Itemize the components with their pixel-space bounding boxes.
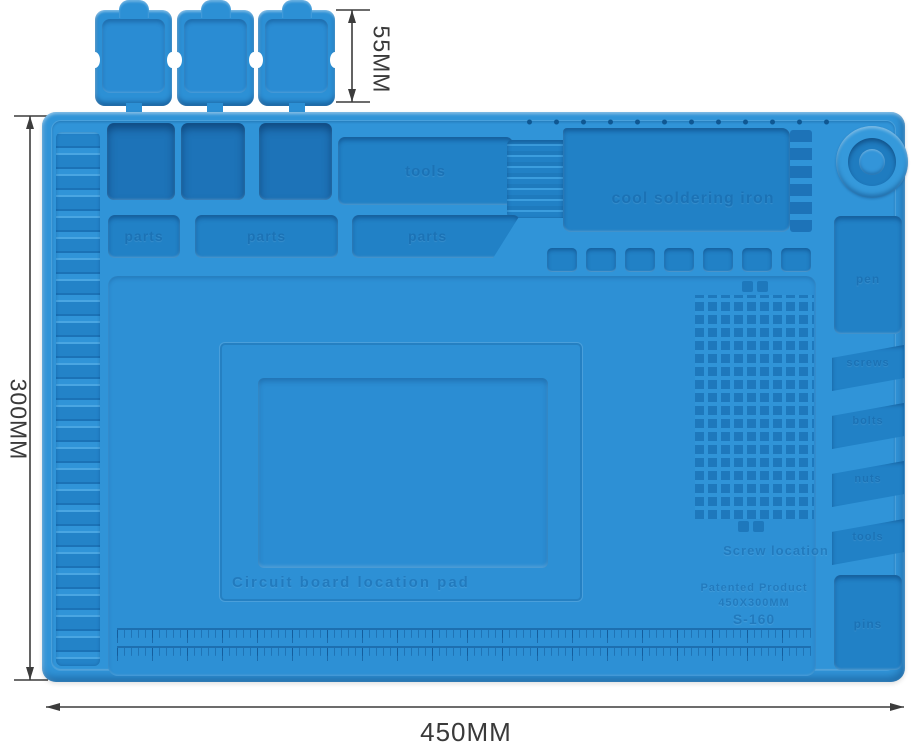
- parts-tray-3-label: parts: [352, 228, 503, 244]
- parts-tray-3: parts: [352, 215, 520, 258]
- pen-tray: pen: [834, 216, 902, 334]
- lid-notch: [253, 52, 263, 68]
- lid-compartment-2: [177, 10, 254, 106]
- tools-tray: tools: [338, 137, 513, 205]
- small-pocket: [781, 248, 811, 272]
- lid-compartment-1: [95, 10, 172, 106]
- right-bottom-tray: pins: [834, 575, 902, 670]
- model-number-label: S-160: [666, 611, 842, 627]
- iron-holder-center: [859, 149, 885, 175]
- circuit-board-pad-label: Circuit board location pad: [232, 574, 532, 591]
- lid-notch: [172, 52, 182, 68]
- patent-line-1: Patented Product: [666, 582, 842, 594]
- soldering-iron-tray-label: cool soldering iron: [603, 190, 783, 208]
- circuit-board-pad: [258, 378, 548, 568]
- product-photo-soldering-mat: 55MM 300MM 450MM tools cool solderin: [0, 0, 919, 752]
- patent-line-2: 450X300MM: [666, 597, 842, 609]
- soldering-iron-tray: cool soldering iron: [563, 128, 790, 232]
- lid-notch: [90, 52, 100, 68]
- small-pocket: [742, 248, 772, 272]
- screw-grid-cell: [753, 521, 764, 532]
- ribbed-ramp: [507, 140, 563, 218]
- square-notch-column: [790, 130, 812, 232]
- screw-grid-cell: [742, 281, 753, 292]
- lid-face: [102, 19, 165, 93]
- bottom-ruler-1: [117, 628, 811, 643]
- parts-tray-1: parts: [108, 215, 180, 258]
- screw-location-grid: [695, 295, 814, 519]
- small-pocket: [586, 248, 616, 272]
- lid-face: [184, 19, 247, 93]
- bit-holes-row: [512, 117, 838, 127]
- left-ridge-strip: [56, 132, 100, 666]
- pen-tray-label: pen: [834, 272, 902, 286]
- bottom-ruler-2: [117, 646, 811, 661]
- slant-tray-3-label: nuts: [832, 473, 904, 485]
- slant-tray-1-label: screws: [832, 357, 904, 369]
- parts-tray-2-label: parts: [195, 228, 338, 244]
- deep-square-compartment-2: [181, 123, 245, 200]
- slant-tray-4-label: tools: [832, 531, 904, 543]
- iron-holder-circle: [836, 126, 908, 198]
- silicone-mat: tools cool soldering iron parts parts pa…: [42, 112, 905, 682]
- small-pocket: [703, 248, 733, 272]
- small-pocket: [547, 248, 577, 272]
- iron-holder-groove: [848, 138, 896, 186]
- deep-square-compartment-1: [107, 123, 175, 200]
- small-pocket: [664, 248, 694, 272]
- small-pocket: [625, 248, 655, 272]
- dimension-label-450mm: 450MM: [396, 717, 536, 748]
- deep-square-compartment-3: [259, 123, 332, 200]
- screw-grid-cell: [738, 521, 749, 532]
- right-bottom-tray-label: pins: [834, 617, 902, 631]
- dimension-label-55mm: 55MM: [368, 15, 395, 105]
- dimension-label-300mm: 300MM: [5, 377, 32, 463]
- tools-tray-label: tools: [338, 163, 513, 180]
- slant-tray-2-label: bolts: [832, 415, 904, 427]
- screw-grid-cell: [757, 281, 768, 292]
- parts-tray-1-label: parts: [108, 228, 180, 244]
- parts-tray-2: parts: [195, 215, 338, 258]
